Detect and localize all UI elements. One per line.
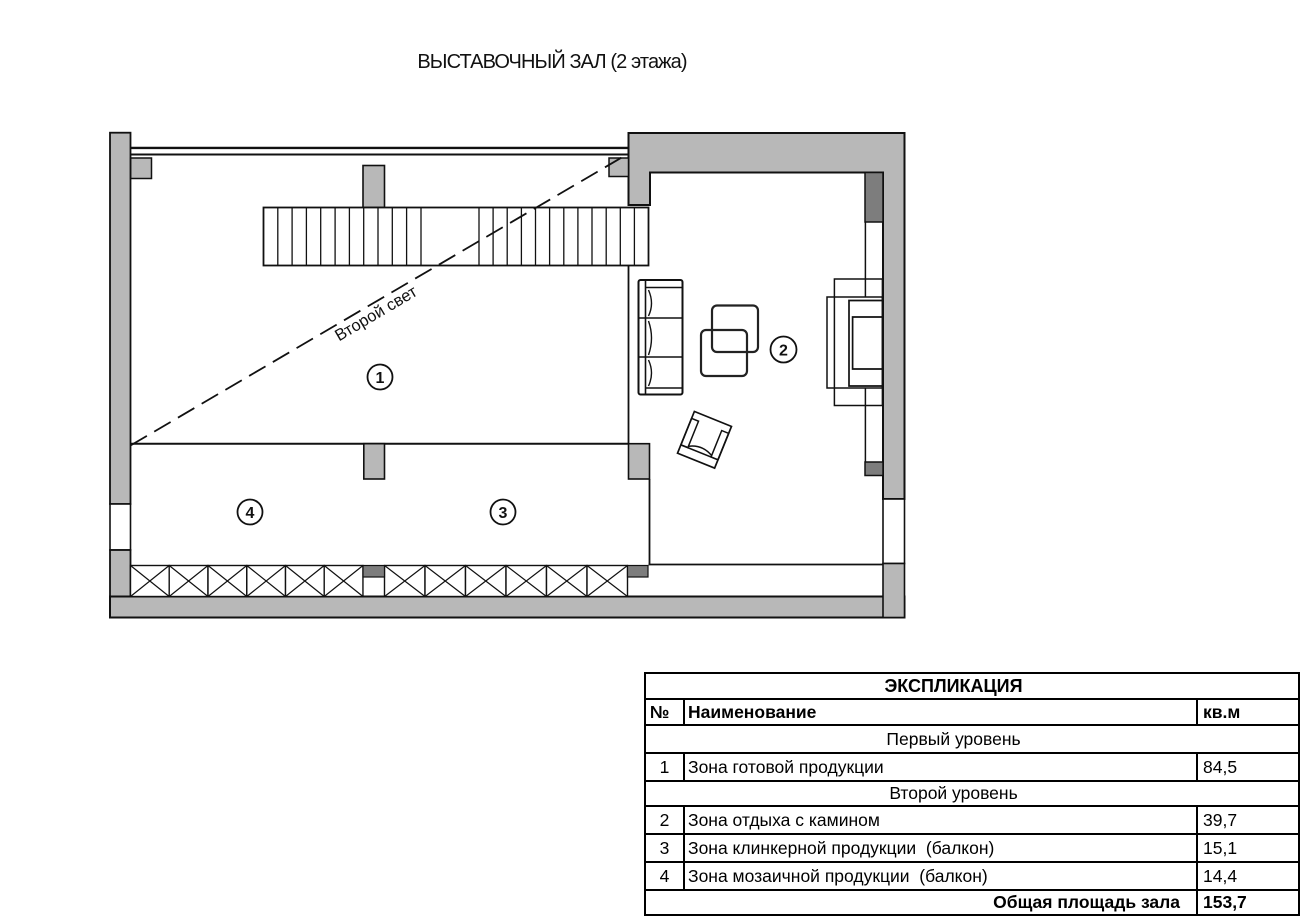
svg-text:4: 4 (246, 505, 255, 522)
svg-text:3: 3 (499, 505, 508, 522)
svg-text:Второй свет: Второй свет (332, 282, 421, 345)
svg-text:2: 2 (779, 342, 788, 359)
svg-text:1: 1 (376, 370, 385, 387)
